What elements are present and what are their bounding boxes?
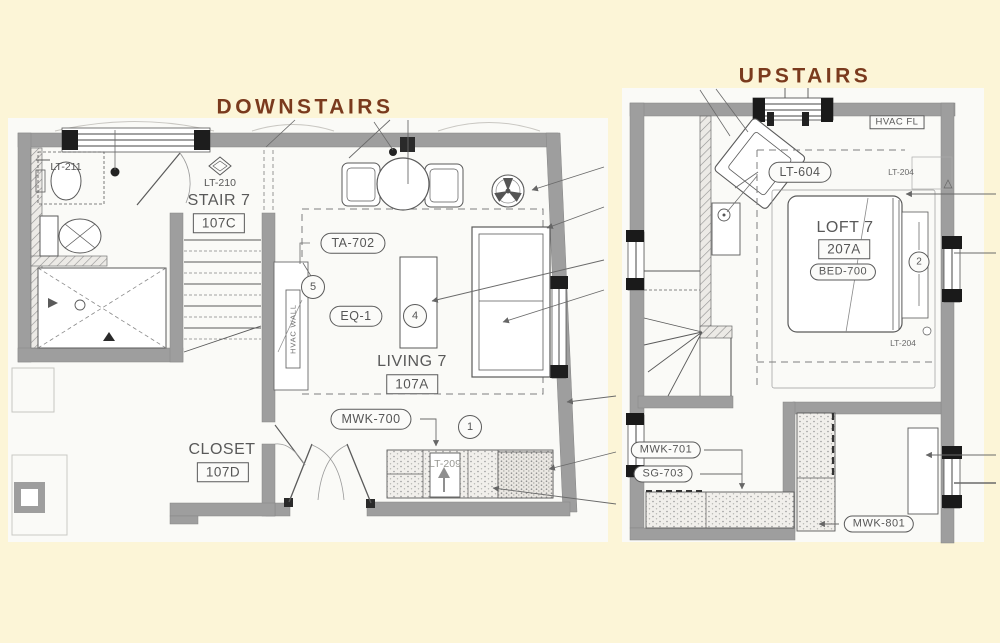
kitchen-counter — [387, 450, 553, 498]
window-tag-top: LT-204 — [888, 168, 914, 177]
porch-column — [12, 368, 67, 535]
hvac-wall-label: HVAC WALL — [289, 304, 297, 354]
ceiling-fan-icon — [492, 175, 524, 207]
stair-room-number: 107C — [193, 213, 245, 233]
upstairs-title: UPSTAIRS — [739, 66, 872, 87]
millwork-tag-capsule: MWK-700 — [330, 409, 411, 430]
bath-light-tag: LT-211 — [50, 162, 81, 173]
entry-doors — [284, 444, 375, 508]
loft-room-number: 207A — [818, 239, 870, 259]
bathroom-door — [137, 153, 190, 205]
keynote-4: 4 — [403, 304, 427, 328]
pendant-light-icon — [389, 148, 397, 156]
wall-post — [400, 137, 415, 152]
upstairs-top-window — [753, 88, 833, 126]
loft-light-tag-capsule: LT-604 — [769, 162, 832, 183]
keynote-1: 1 — [458, 415, 482, 439]
stair-room-name: STAIR 7 — [188, 193, 251, 209]
closet-room-name: CLOSET — [188, 442, 255, 458]
floorplan-sheet: DOWNSTAIRS UPSTAIRS LT-211 LT-210 STAIR … — [0, 0, 1000, 643]
keynote-2: 2 — [909, 252, 930, 273]
table-tag-capsule: TA-702 — [320, 233, 385, 254]
millwork-701-capsule: MWK-701 — [631, 442, 701, 459]
loft-room-name: LOFT 7 — [817, 220, 874, 236]
toilet — [40, 216, 101, 256]
downstairs-plan — [12, 120, 616, 535]
equipment-tag-capsule: EQ-1 — [329, 306, 382, 327]
closet-door — [275, 425, 305, 465]
plan-linework — [0, 0, 1000, 643]
downstairs-title: DOWNSTAIRS — [217, 97, 394, 118]
stair-winder — [644, 271, 702, 396]
bed-tag-capsule: BED-700 — [810, 264, 876, 281]
dining-set — [342, 158, 463, 210]
right-wall-window — [550, 276, 568, 378]
stair-light-tag: LT-210 — [204, 178, 236, 189]
keynote-diamond-icon — [209, 157, 231, 175]
top-window — [62, 128, 210, 152]
sofa — [472, 227, 550, 377]
millwork-801-capsule: MWK-801 — [844, 516, 914, 533]
media-console — [400, 257, 437, 348]
hvac-fl-box: HVAC FL — [870, 115, 925, 129]
glass-tag-capsule: SG-703 — [634, 466, 693, 483]
shower — [38, 268, 166, 348]
desk — [908, 428, 938, 514]
kitchen-light-tag: LT-209 — [429, 459, 461, 470]
living-room-name: LIVING 7 — [377, 354, 447, 370]
window-tag-bottom: LT-204 — [890, 339, 916, 348]
keynote-5: 5 — [301, 275, 325, 299]
closet-room-number: 107D — [197, 462, 249, 482]
living-room-number: 107A — [386, 374, 438, 394]
